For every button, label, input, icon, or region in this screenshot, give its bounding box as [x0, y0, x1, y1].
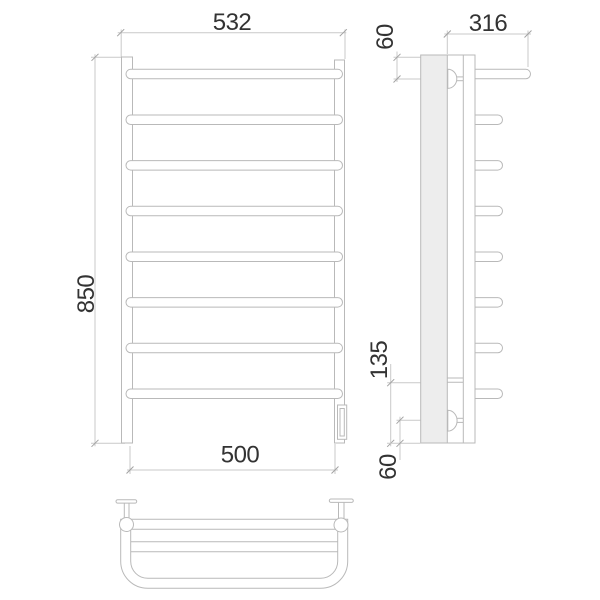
heating-element	[338, 405, 347, 439]
technical-drawing-page: 532 850 500	[0, 0, 600, 600]
wall-flange-left	[116, 500, 137, 503]
side-rungs	[471, 69, 531, 398]
side-view: 316 60 135 60	[366, 10, 532, 480]
rung-end	[471, 252, 503, 262]
wall-section	[421, 55, 448, 443]
towel-rail-drawing-canvas: 532 850 500	[0, 0, 600, 600]
side-top-offset-label: 60	[372, 24, 399, 50]
rung	[126, 115, 343, 125]
rung	[126, 252, 343, 262]
front-view: 532 850 500	[73, 9, 347, 474]
top-view	[116, 499, 353, 588]
rung-end	[471, 161, 503, 171]
rung	[126, 298, 343, 308]
rung-end	[471, 115, 503, 125]
ball-joint-left	[120, 518, 134, 532]
bracket-stem-right	[339, 503, 345, 519]
rung	[126, 69, 343, 79]
rung	[126, 389, 343, 399]
shelf-outline-inner	[131, 529, 338, 578]
top-wall-bracket	[448, 69, 464, 88]
bracket-stem-left	[124, 503, 129, 518]
wall-flange-right	[329, 499, 353, 502]
front-rungs	[126, 69, 343, 398]
front-height-label: 850	[73, 275, 100, 314]
front-dim-height: 850	[73, 54, 125, 447]
side-lower-connection-label: 135	[366, 341, 393, 380]
bottom-wall-bracket	[448, 410, 464, 431]
rung	[126, 343, 343, 353]
rung-end	[471, 206, 503, 216]
front-dim-width-top: 532	[117, 9, 347, 59]
rung-end	[471, 298, 503, 308]
front-dim-width-bottom: 500	[127, 442, 339, 475]
rung-end	[471, 343, 503, 353]
side-bottom-offset-label: 60	[375, 454, 402, 480]
rung	[126, 161, 343, 171]
rung	[126, 206, 343, 216]
rail-profile-tube	[463, 55, 475, 443]
front-width-bottom-label: 500	[221, 442, 260, 469]
shelf-bar	[471, 69, 531, 79]
side-depth-label: 316	[469, 10, 508, 37]
ball-joint-right	[334, 518, 348, 532]
front-width-top-label: 532	[213, 9, 252, 36]
side-dim-depth: 316	[444, 10, 532, 67]
lower-connection-stub	[447, 378, 463, 382]
rung-end	[471, 389, 503, 399]
